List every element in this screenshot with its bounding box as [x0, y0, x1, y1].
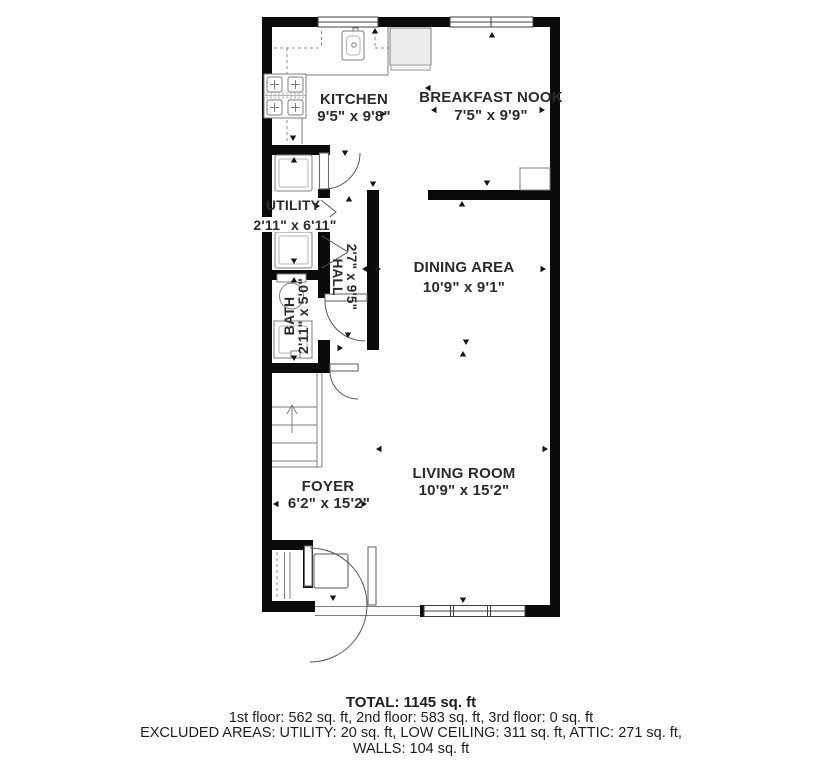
- dimension-marker: [370, 182, 376, 188]
- dimension-marker: [342, 151, 348, 157]
- excluded-areas: EXCLUDED AREAS: UTILITY: 20 sq. ft, LOW …: [0, 726, 822, 742]
- living-room-dims: 10'9" x 15'2": [419, 482, 510, 499]
- wall-bottom-left: [262, 601, 315, 612]
- dining-area-label: DINING AREA: [414, 259, 515, 276]
- dimension-marker: [346, 196, 352, 202]
- dimension-marker: [459, 201, 465, 207]
- foyer-dims: 6'2" x 15'2": [288, 495, 370, 512]
- stove: [264, 74, 306, 118]
- dimension-marker: [376, 446, 382, 452]
- kitchen-label: KITCHEN: [320, 91, 388, 108]
- foyer-label: FOYER: [302, 478, 355, 495]
- floor-areas: 1st floor: 562 sq. ft, 2nd floor: 583 sq…: [0, 711, 822, 727]
- dimension-marker: [541, 266, 547, 272]
- floor-plan-page: KITCHEN 9'5" x 9'8" BREAKFAST NOOK 7'5" …: [0, 0, 822, 768]
- dimension-marker: [330, 596, 336, 602]
- dining-area-dims: 10'9" x 9'1": [423, 279, 505, 296]
- dimension-marker: [290, 136, 296, 142]
- bath-dims: 2'11" x 5'0": [295, 278, 311, 354]
- walls-area: WALLS: 104 sq. ft: [0, 742, 822, 758]
- area-summary: TOTAL: 1145 sq. ft 1st floor: 562 sq. ft…: [0, 695, 822, 757]
- dimension-marker: [345, 333, 351, 339]
- breakfast-nook-dims: 7'5" x 9'9": [454, 107, 528, 124]
- dimension-marker: [431, 107, 437, 113]
- kitchen-hall-door: [320, 153, 361, 189]
- dimension-marker: [460, 598, 466, 604]
- stair-direction-arrow: [287, 405, 297, 433]
- window-kitchen: [318, 17, 378, 27]
- window-living-room: [424, 606, 525, 617]
- dimension-marker: [372, 28, 378, 34]
- staircase: [272, 373, 322, 467]
- dimension-marker: [543, 446, 549, 452]
- utility-label: UTILITY: [266, 197, 321, 213]
- hall-dims: 2'7" x 9'5": [344, 244, 359, 310]
- dimension-marker: [489, 32, 495, 38]
- dimension-marker: [484, 181, 490, 187]
- entry-door: [305, 546, 421, 662]
- wall-bath-bottom: [262, 363, 330, 373]
- wall-nook-dining: [428, 190, 550, 200]
- hall-label: HALL: [330, 259, 345, 296]
- dimension-marker: [463, 340, 469, 346]
- hall-foyer-door: [330, 364, 358, 399]
- floor-plan-canvas: KITCHEN 9'5" x 9'8" BREAKFAST NOOK 7'5" …: [0, 0, 822, 768]
- dimension-marker: [273, 501, 279, 507]
- refrigerator: [390, 28, 431, 70]
- closet: [277, 552, 290, 599]
- kitchen-sink: [342, 28, 364, 60]
- dimension-marker: [460, 351, 466, 357]
- nook-cabinet: [520, 168, 550, 190]
- utility-dims: 2'11" x 6'11": [253, 217, 336, 233]
- wall-right: [550, 17, 560, 617]
- breakfast-nook-label: BREAKFAST NOOK: [419, 89, 563, 106]
- dimension-marker: [540, 107, 546, 113]
- dimension-marker: [362, 266, 368, 272]
- kitchen-dims: 9'5" x 9'8": [317, 108, 391, 125]
- living-room-label: LIVING ROOM: [412, 465, 515, 482]
- total-area: TOTAL: 1145 sq. ft: [0, 695, 822, 711]
- dimension-marker: [338, 345, 344, 351]
- kitchen-fixtures: [264, 27, 431, 144]
- window-breakfast-nook: [450, 17, 533, 27]
